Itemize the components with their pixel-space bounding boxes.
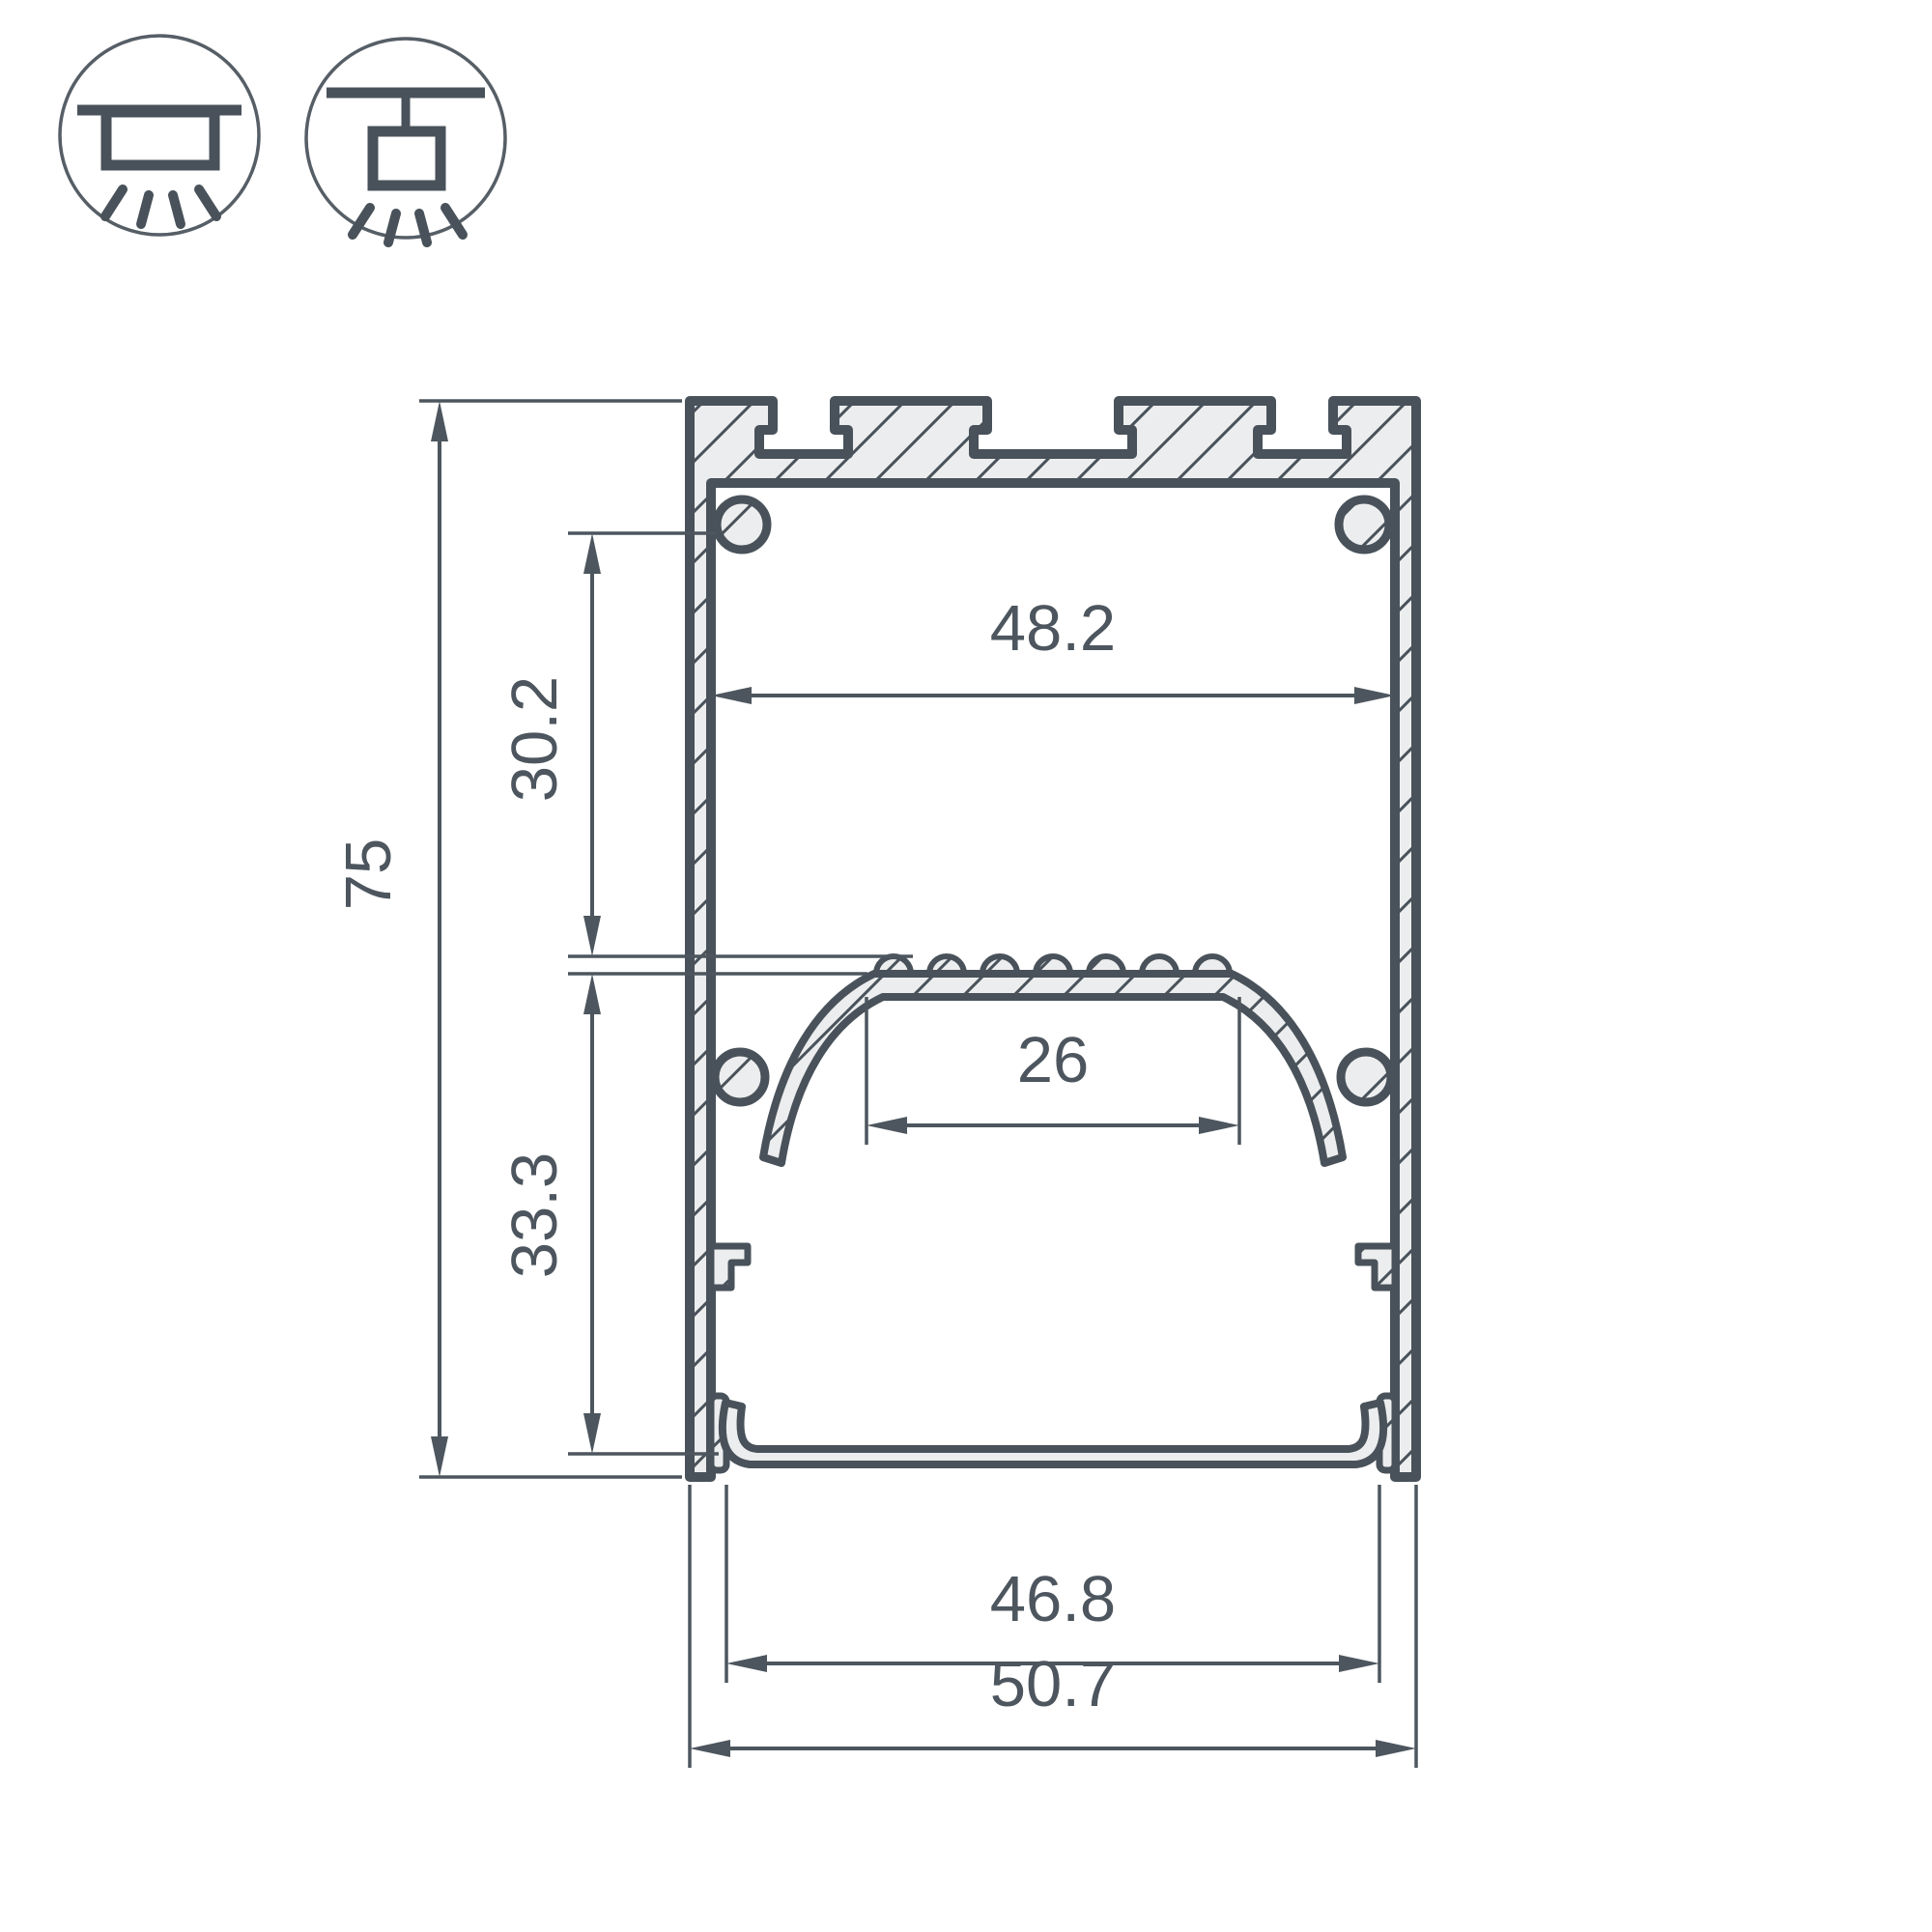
arrowhead-right [1354, 687, 1395, 704]
screw-boss-top-left [717, 499, 767, 550]
drawing-canvas: 75 30.2 33.3 48.2 [0, 0, 1932, 1932]
arrowhead-left [867, 1117, 907, 1134]
dim-label-overall-height: 75 [332, 838, 405, 911]
wall-hook-left [711, 1246, 748, 1288]
arrowhead-right [1339, 1655, 1379, 1672]
dim-label-overall-width: 50.7 [990, 1648, 1116, 1720]
luminaire-box [106, 112, 214, 165]
technical-drawing-page: 75 30.2 33.3 48.2 [0, 0, 1932, 1932]
arrowhead-right [1376, 1740, 1416, 1757]
dim-label-top-inner-width: 48.2 [990, 592, 1116, 665]
surface-mount-icon [60, 36, 259, 235]
arrowhead-left [726, 1655, 767, 1672]
dim-label-led-platform-width: 26 [1017, 1024, 1090, 1096]
dim-top-inner-width: 48.2 [711, 592, 1395, 704]
arrowhead-up [583, 533, 601, 574]
pendant-mount-icon [306, 39, 505, 242]
dim-label-lower-cavity: 33.3 [498, 1152, 571, 1278]
profile-body [690, 401, 1416, 1477]
dim-led-platform-width: 26 [867, 997, 1239, 1145]
screw-boss-mid-left [715, 1052, 765, 1102]
mounting-icons [60, 36, 505, 242]
screw-boss-top-right [1339, 499, 1389, 550]
dim-overall-height: 75 [332, 401, 682, 1477]
profile-cross-section [690, 401, 1416, 1477]
arrowhead-right [1199, 1117, 1239, 1134]
luminaire-box [373, 131, 440, 185]
arrowhead-left [690, 1740, 730, 1757]
screw-boss-mid-right [1341, 1052, 1391, 1102]
dim-label-upper-cavity: 30.2 [498, 676, 571, 802]
dimensions: 75 30.2 33.3 48.2 [332, 401, 1416, 1768]
arrowhead-up [583, 974, 601, 1014]
arrowhead-up [431, 401, 448, 441]
arrowhead-left [711, 687, 752, 704]
arrowhead-down [431, 1436, 448, 1477]
dim-label-bottom-opening-width: 46.8 [990, 1563, 1116, 1635]
wall-hook-right [1358, 1246, 1395, 1288]
arrowhead-down [583, 1413, 601, 1454]
diffuser-cover [723, 1403, 1383, 1464]
arrowhead-down [583, 916, 601, 956]
